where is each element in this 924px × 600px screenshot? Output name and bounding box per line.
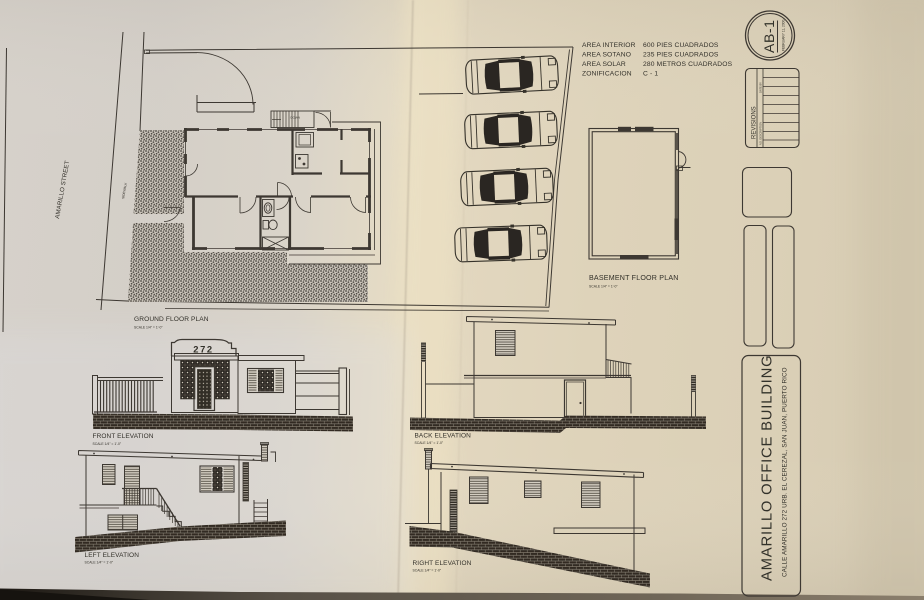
svg-text:SCALE 1/4" = 1'-0": SCALE 1/4" = 1'-0" xyxy=(589,285,618,289)
svg-text:SCALE 1/4" = 1'-0": SCALE 1/4" = 1'-0" xyxy=(134,326,163,330)
svg-text:272: 272 xyxy=(193,344,213,355)
svg-text:AMARILLO OFFICE BUILDING: AMARILLO OFFICE BUILDING xyxy=(760,355,776,581)
svg-text:AB-1: AB-1 xyxy=(761,19,777,53)
svg-text:SCALE 1/4" = 1'-0": SCALE 1/4" = 1'-0" xyxy=(85,561,114,565)
svg-text:AREA SOTANO: AREA SOTANO xyxy=(582,52,631,59)
svg-text:SCALE 1/4" = 1'-0": SCALE 1/4" = 1'-0" xyxy=(415,441,444,445)
svg-text:RIGHT ELEVATION: RIGHT ELEVATION xyxy=(413,560,472,567)
svg-text:BASEMENT FLOOR PLAN: BASEMENT FLOOR PLAN xyxy=(589,274,679,282)
svg-text:600 PIES CUADRADOS: 600 PIES CUADRADOS xyxy=(643,42,719,49)
svg-text:LEFT ELEVATION: LEFT ELEVATION xyxy=(85,552,140,559)
svg-text:REVISIONS: REVISIONS xyxy=(752,106,758,139)
svg-text:ZONIFICACION: ZONIFICACION xyxy=(582,71,632,78)
svg-text:FEBRUARY 11, 2000: FEBRUARY 11, 2000 xyxy=(782,19,786,51)
svg-text:235 PIES CUADRADOS: 235 PIES CUADRADOS xyxy=(643,52,719,59)
svg-text:SCALE 1/4" = 1'-0": SCALE 1/4" = 1'-0" xyxy=(93,442,122,446)
svg-text:GROUND FLOOR PLAN: GROUND FLOOR PLAN xyxy=(134,316,209,323)
svg-text:280 METROS CUADRADOS: 280 METROS CUADRADOS xyxy=(643,61,733,68)
svg-text:DOWN: DOWN xyxy=(291,116,301,120)
svg-text:BACK ELEVATION: BACK ELEVATION xyxy=(415,433,472,440)
svg-text:NO. DESCRIPTION: NO. DESCRIPTION xyxy=(759,122,763,145)
svg-text:AREA SOLAR: AREA SOLAR xyxy=(582,61,626,68)
svg-text:CALLE AMARILLO 272 URB. EL CER: CALLE AMARILLO 272 URB. EL CEREZAL, SAN … xyxy=(782,367,789,577)
svg-text:AREA INTERIOR: AREA INTERIOR xyxy=(582,42,636,49)
svg-text:C - 1: C - 1 xyxy=(643,71,658,78)
svg-text:SCALE 1/4" = 1'-0": SCALE 1/4" = 1'-0" xyxy=(413,569,442,573)
svg-text:FRONT ELEVATION: FRONT ELEVATION xyxy=(93,433,154,440)
svg-text:DATE BY: DATE BY xyxy=(759,82,763,93)
